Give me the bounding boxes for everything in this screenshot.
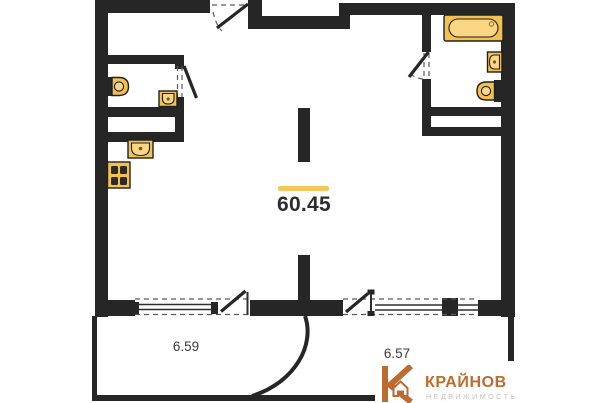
area-label-balcony-right: 6.57 — [367, 346, 427, 361]
sink-icon — [159, 91, 177, 107]
logo-brand-text: КРАЙНОВ — [425, 374, 507, 392]
bathtub-icon — [444, 15, 503, 41]
toilet-icon — [105, 77, 129, 96]
entrance-door-swing — [212, 4, 248, 31]
hall-bathroom-door-swing — [178, 66, 197, 98]
sink-icon — [488, 52, 503, 72]
area-underline — [278, 186, 329, 191]
kitchen-sink-icon — [128, 140, 153, 158]
logo-k-house-icon — [379, 365, 417, 403]
area-label-main: 60.45 — [269, 193, 339, 217]
logo: КРАЙНОВ НЕДВИЖИМОСТЬ — [375, 361, 523, 403]
stove-icon — [108, 162, 131, 188]
balcony-partition-curve — [252, 316, 308, 396]
floor-plan: 60.45 6.59 6.57 КРАЙНОВ НЕДВИЖИМОСТЬ — [0, 0, 605, 403]
balcony-door-right — [346, 290, 375, 317]
logo-tagline-text: НЕДВИЖИМОСТЬ — [426, 392, 517, 401]
area-label-balcony-left: 6.59 — [156, 339, 216, 354]
toilet-icon — [477, 82, 495, 100]
bathroom-door-swing — [408, 52, 429, 79]
balcony-door-left — [221, 291, 248, 315]
